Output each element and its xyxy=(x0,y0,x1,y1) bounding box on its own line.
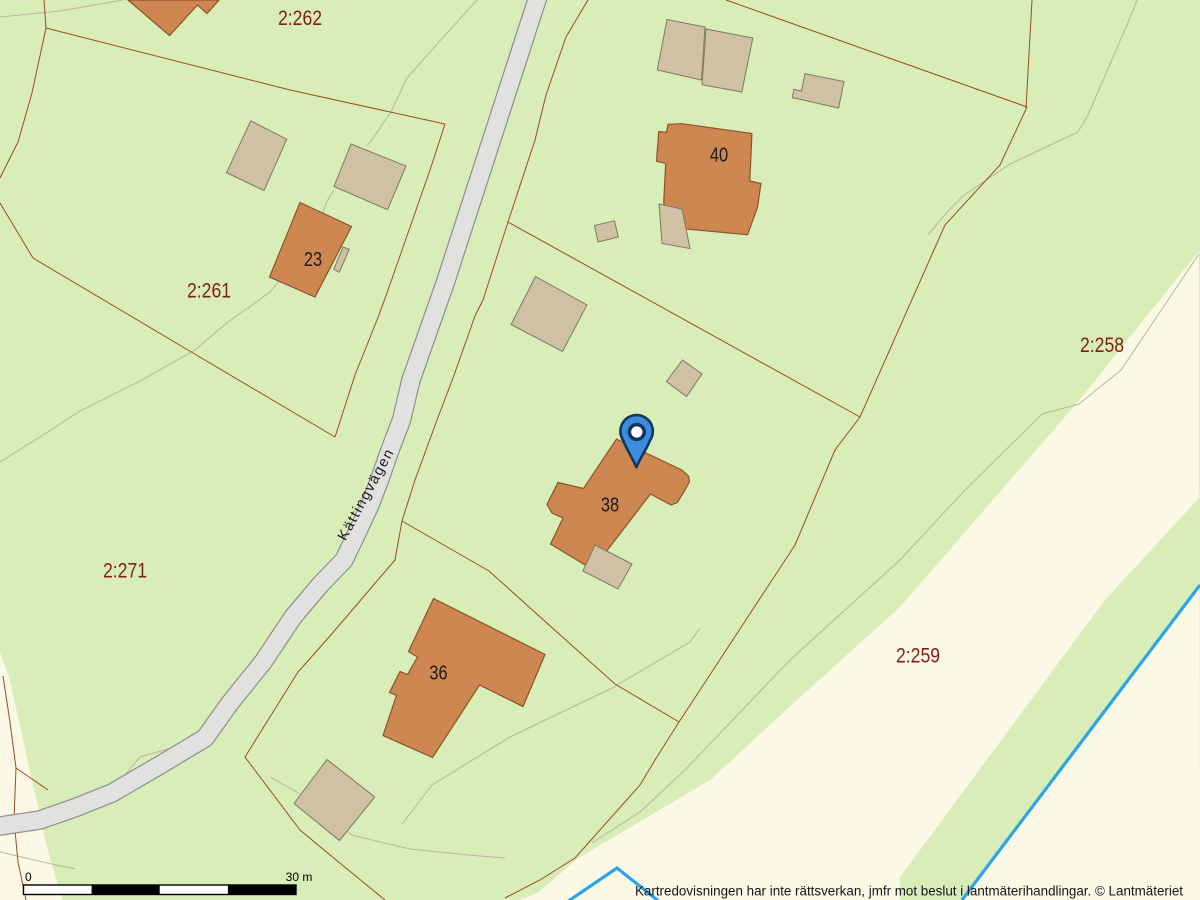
svg-text:2:271: 2:271 xyxy=(103,559,147,583)
svg-text:30 m: 30 m xyxy=(286,870,313,884)
svg-text:Kartredovisningen har inte rät: Kartredovisningen har inte rättsverkan, … xyxy=(635,884,1183,899)
svg-text:38: 38 xyxy=(601,493,619,516)
svg-text:2:259: 2:259 xyxy=(896,644,940,668)
svg-text:2:261: 2:261 xyxy=(187,279,231,303)
svg-text:40: 40 xyxy=(710,143,728,166)
svg-text:36: 36 xyxy=(429,661,447,684)
svg-text:2:262: 2:262 xyxy=(278,7,322,31)
svg-text:23: 23 xyxy=(304,247,322,270)
svg-text:0: 0 xyxy=(25,870,32,884)
svg-text:2:258: 2:258 xyxy=(1080,334,1124,358)
